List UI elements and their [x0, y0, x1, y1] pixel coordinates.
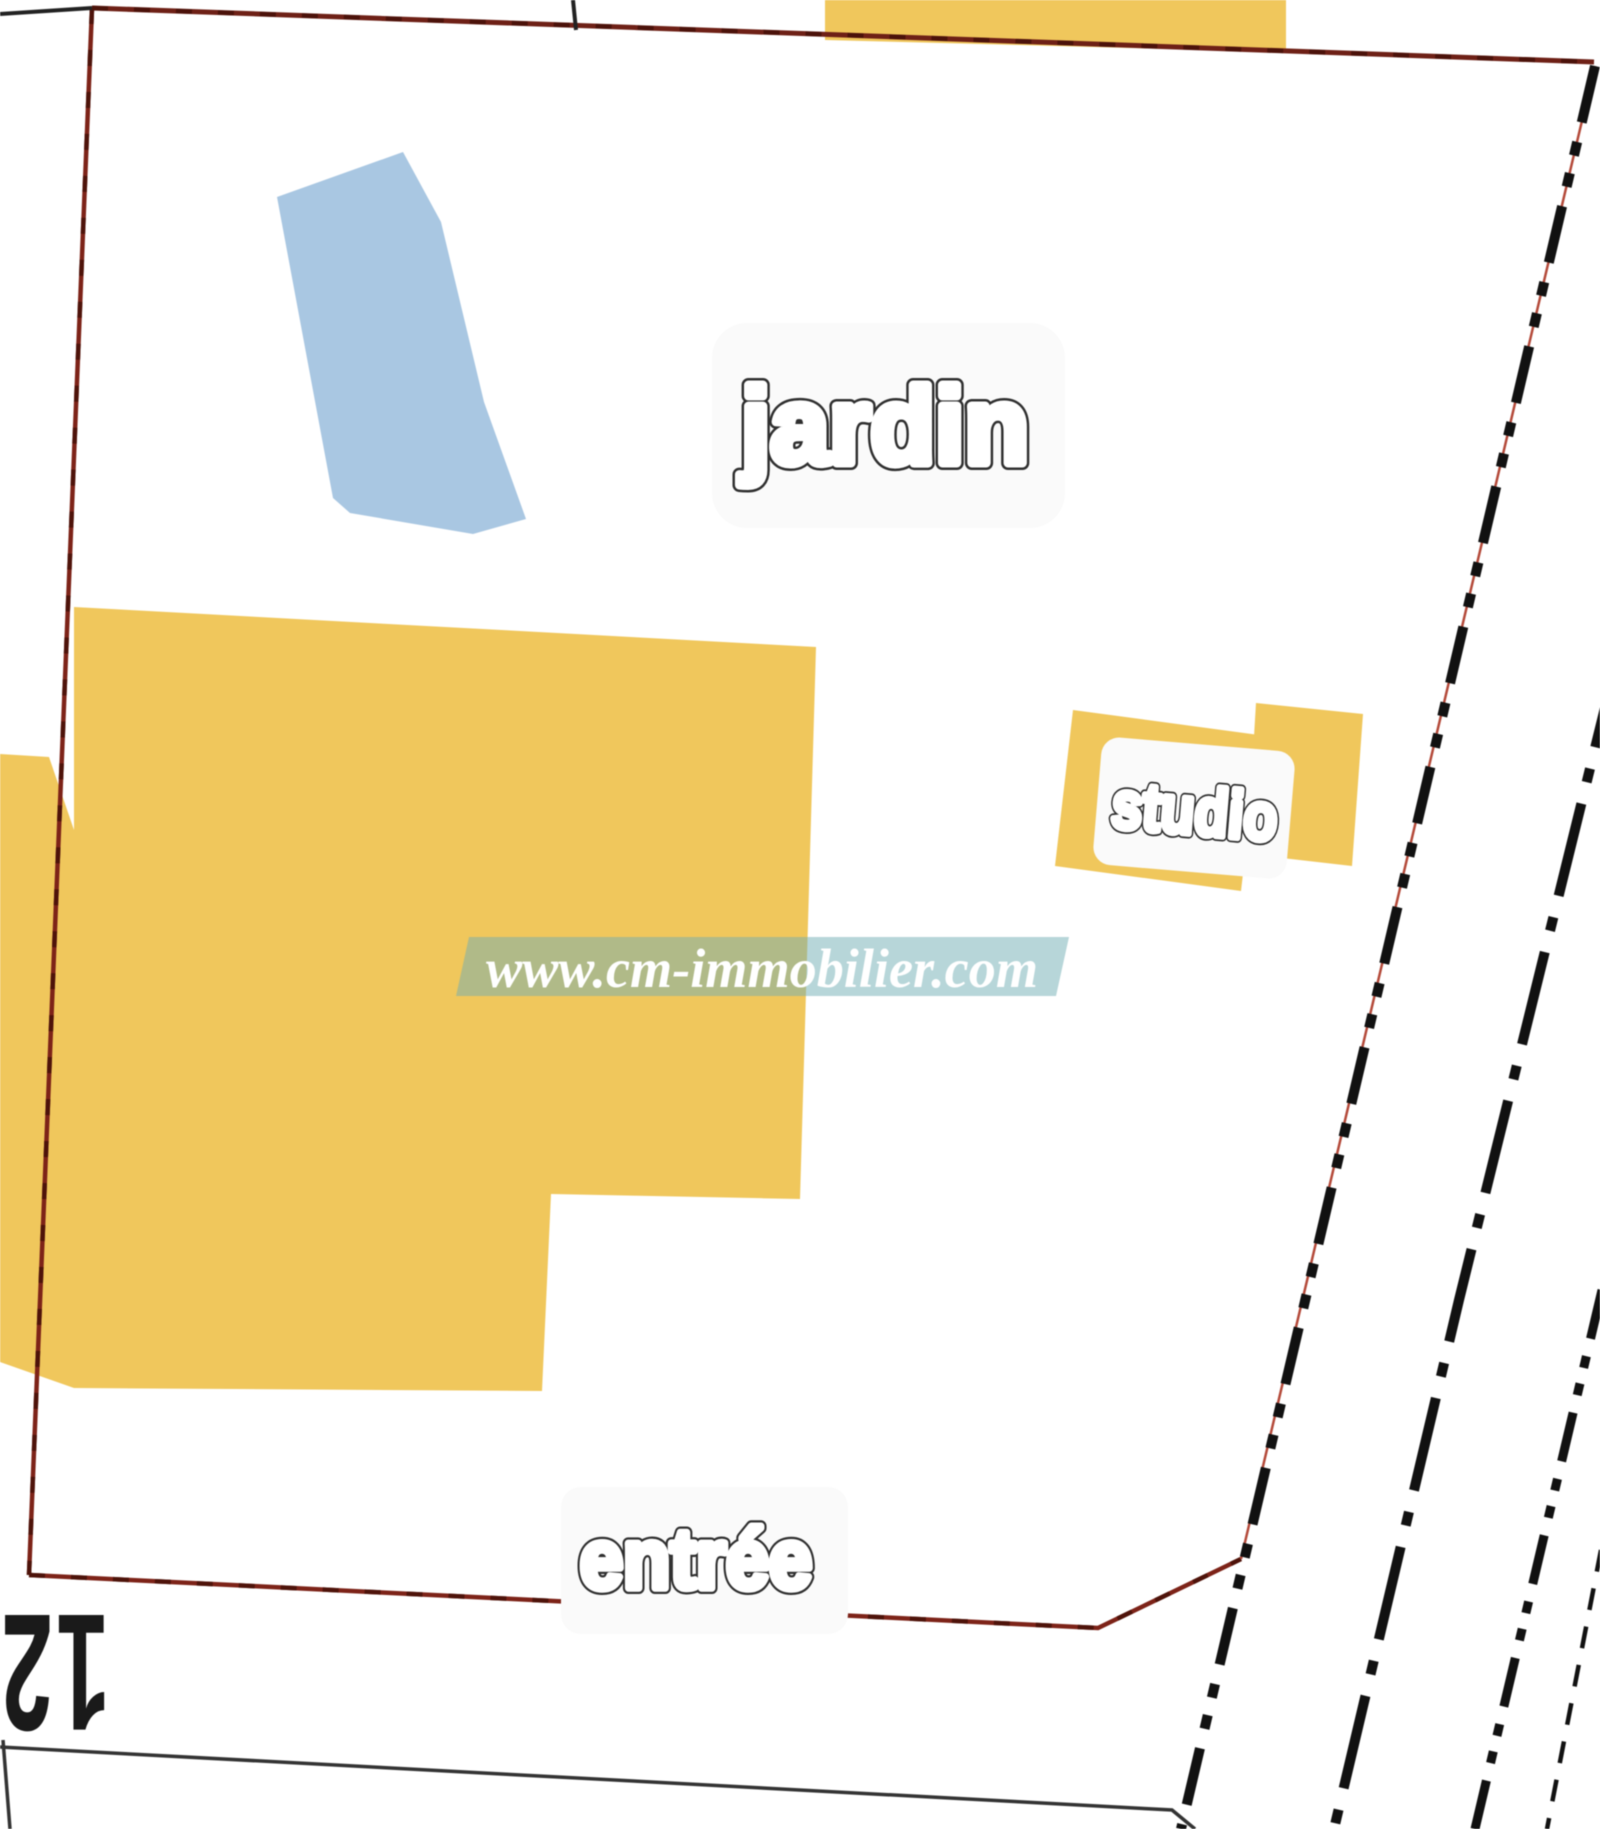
svg-text:www.cm-immobilier.com: www.cm-immobilier.com — [486, 938, 1038, 999]
svg-text:jardin: jardin — [739, 365, 1029, 486]
svg-text:entrée: entrée — [580, 1512, 812, 1606]
svg-text:studio: studio — [1109, 767, 1281, 856]
svg-text:12: 12 — [0, 1563, 110, 1760]
